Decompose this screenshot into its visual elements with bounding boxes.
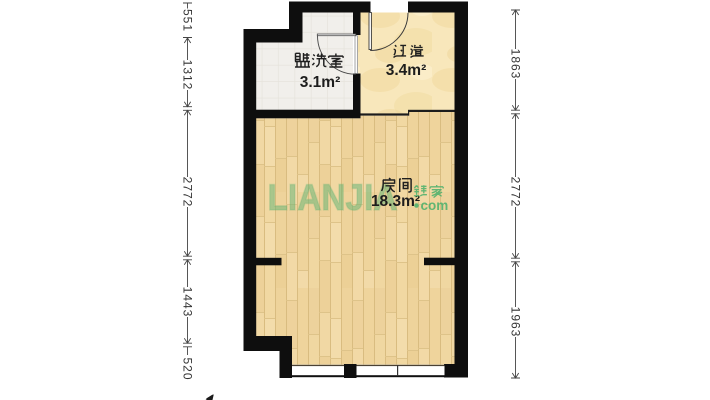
svg-text:551: 551 [181, 9, 195, 32]
svg-text:3.1m²: 3.1m² [300, 74, 341, 91]
svg-text:1312: 1312 [181, 60, 195, 91]
svg-text:com: com [421, 198, 449, 213]
svg-text:1863: 1863 [509, 49, 523, 80]
svg-text:2772: 2772 [181, 177, 195, 208]
svg-text:2772: 2772 [509, 177, 523, 208]
svg-text:3.4m²: 3.4m² [386, 62, 427, 79]
svg-text:1443: 1443 [181, 287, 195, 318]
svg-text:1963: 1963 [509, 307, 523, 338]
svg-text:520: 520 [181, 357, 195, 380]
svg-text:18.3m²: 18.3m² [371, 193, 420, 210]
